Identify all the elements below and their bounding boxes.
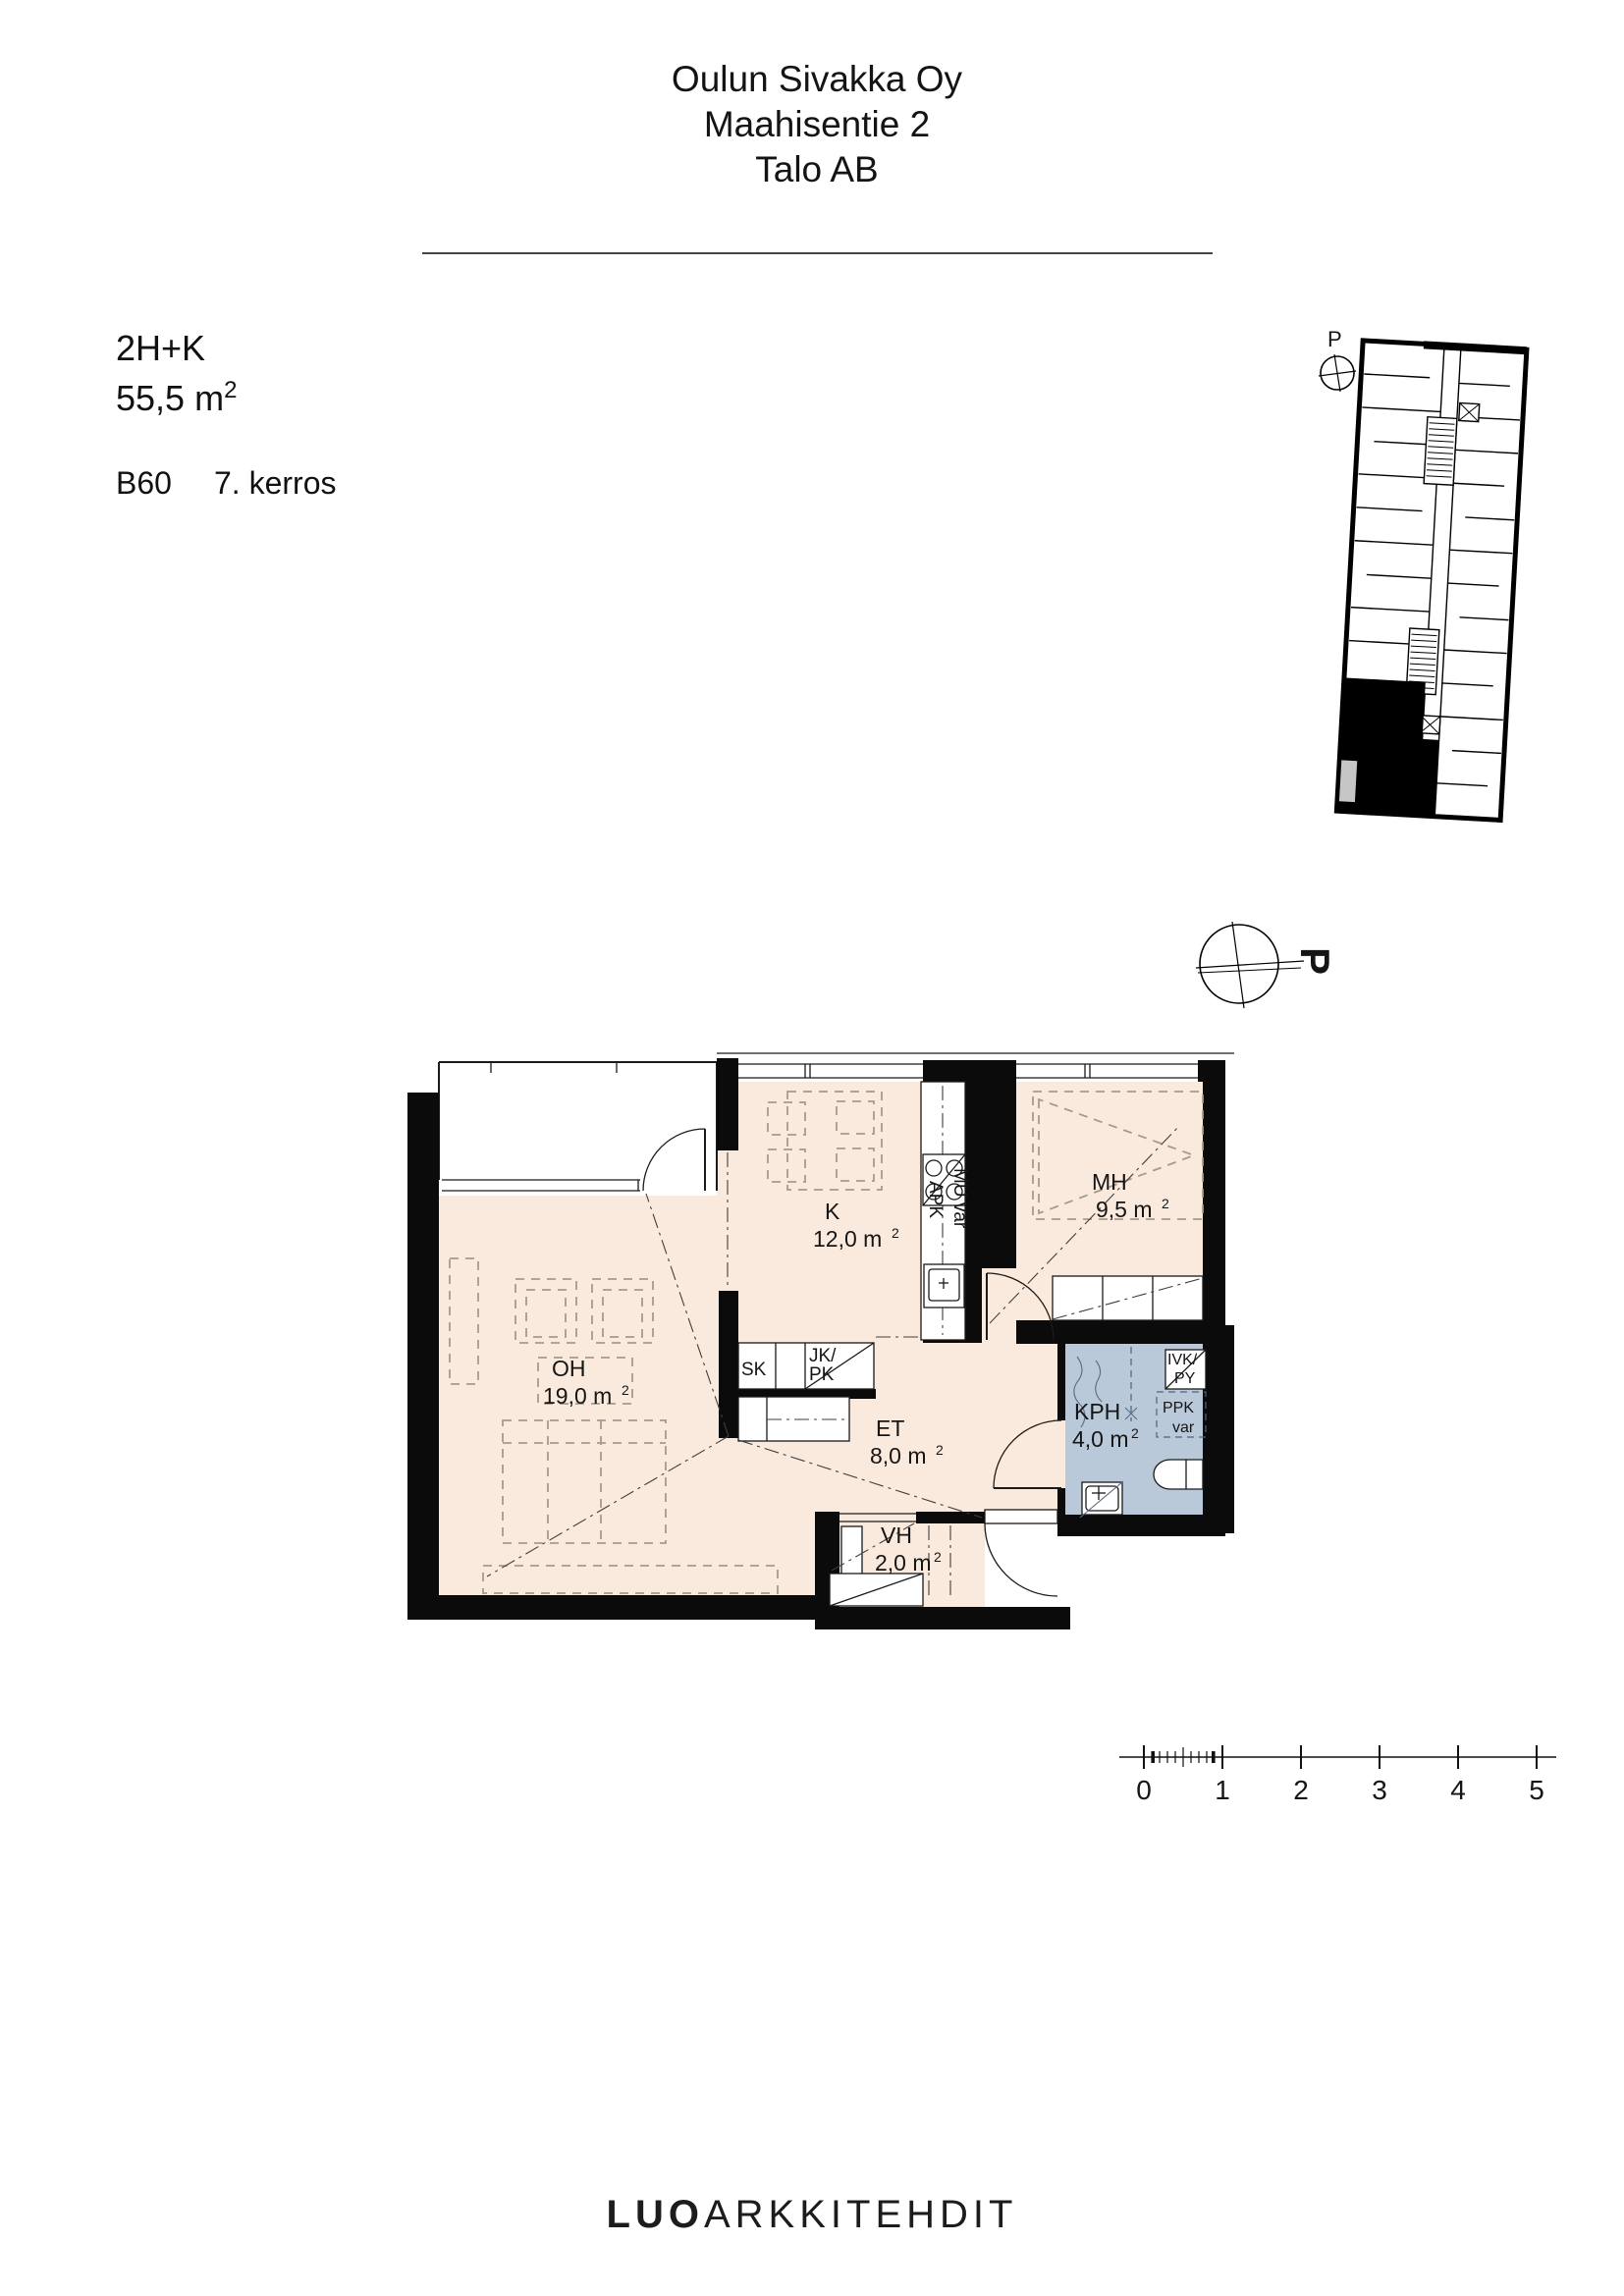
label-pk: PK xyxy=(809,1364,835,1385)
room-label-oh: OH xyxy=(552,1356,586,1381)
room-label-mh: MH xyxy=(1092,1169,1127,1195)
entrance-door xyxy=(985,1510,1057,1523)
document-title: Oulun Sivakka Oy Maahisentie 2 Talo AB xyxy=(424,57,1210,192)
wall xyxy=(916,1512,985,1523)
scale-bar: 0 1 2 3 4 5 xyxy=(1110,1733,1571,1811)
label-ppk: PPK xyxy=(1163,1400,1194,1416)
label-apk: APK xyxy=(925,1181,946,1218)
keyplan-north-label: P xyxy=(1327,327,1342,351)
compass-north-label: P xyxy=(1292,947,1338,975)
north-compass: P xyxy=(1164,898,1370,1036)
scale-label-4: 4 xyxy=(1450,1775,1466,1805)
wall xyxy=(407,1093,439,1620)
wall xyxy=(407,1595,839,1620)
logo-luo: LUO xyxy=(607,2193,704,2236)
room-label-k: K xyxy=(825,1199,840,1224)
apartment-area-sup: 2 xyxy=(224,377,237,403)
apartment-floor: 7. kerros xyxy=(214,465,336,502)
room-area-mh: 9,5 m xyxy=(1096,1197,1153,1222)
apartment-type: 2H+K xyxy=(116,328,205,369)
room-area-oh: 19,0 m xyxy=(543,1383,612,1409)
balcony xyxy=(439,1062,717,1191)
wall xyxy=(1057,1488,1065,1515)
title-address: Maahisentie 2 xyxy=(424,102,1210,147)
wall xyxy=(1016,1320,1225,1344)
et-floor xyxy=(738,1522,815,1607)
room-label-vh: VH xyxy=(881,1522,912,1548)
room-area-sup: 2 xyxy=(934,1549,942,1565)
scale-label-3: 3 xyxy=(1372,1775,1387,1805)
wall xyxy=(1057,1515,1225,1536)
apartment-area: 55,5 m2 xyxy=(116,377,237,419)
room-area-et: 8,0 m xyxy=(870,1443,927,1468)
keyplan-building xyxy=(1336,338,1527,821)
wall xyxy=(717,1058,738,1150)
keyplan-balcony-gray xyxy=(1339,760,1357,802)
balcony-door-swing xyxy=(643,1129,705,1191)
label-jk: JK/ xyxy=(809,1346,837,1366)
title-building: Talo AB xyxy=(424,147,1210,192)
room-area-kph: 4,0 m xyxy=(1072,1426,1129,1452)
wall xyxy=(1223,1325,1234,1533)
apartment-id: B60 xyxy=(116,465,172,502)
wall xyxy=(1057,1344,1065,1420)
scale-label-5: 5 xyxy=(1529,1775,1544,1805)
room-area-vh: 2,0 m xyxy=(875,1550,932,1575)
apartment-area-value: 55,5 m xyxy=(116,378,224,418)
toilet-icon xyxy=(1154,1460,1203,1489)
entry-corridor xyxy=(985,1523,1065,1610)
scale-label-0: 0 xyxy=(1136,1775,1152,1805)
wall xyxy=(982,1060,1016,1268)
wall xyxy=(1203,1060,1225,1533)
wall xyxy=(815,1607,1070,1629)
room-area-sup: 2 xyxy=(622,1382,629,1398)
logo-arkkitehdit: ARKKITEHDIT xyxy=(704,2193,1017,2236)
label-py: PY xyxy=(1174,1370,1196,1387)
keyplan-compass-icon xyxy=(1319,354,1356,392)
label-ppk-var: var xyxy=(1172,1419,1195,1436)
mh-closet xyxy=(1053,1276,1203,1320)
room-area-sup: 2 xyxy=(1131,1425,1139,1441)
room-label-et: ET xyxy=(876,1415,904,1441)
room-label-kph: KPH xyxy=(1074,1399,1120,1424)
room-area-sup: 2 xyxy=(892,1225,899,1241)
architect-logo: LUOARKKITEHDIT xyxy=(0,2193,1624,2237)
k-window xyxy=(738,1060,923,1082)
scale-label-1: 1 xyxy=(1215,1775,1230,1805)
title-company: Oulun Sivakka Oy xyxy=(424,57,1210,102)
label-mu-var: MU var xyxy=(949,1168,970,1229)
label-ivk: IVK/ xyxy=(1167,1352,1198,1368)
compass-icon xyxy=(1196,922,1304,1008)
label-sk: SK xyxy=(741,1360,767,1380)
title-divider xyxy=(422,252,1213,254)
room-area-sup: 2 xyxy=(936,1442,944,1458)
scale-label-2: 2 xyxy=(1293,1775,1309,1805)
mh-window xyxy=(1016,1060,1198,1082)
room-area-k: 12,0 m xyxy=(813,1226,882,1252)
room-area-sup: 2 xyxy=(1162,1196,1169,1211)
floor-plan: OH 19,0 m 2 K 12,0 m 2 MH 9,5 m 2 ET 8,0… xyxy=(393,1031,1257,1649)
keyplan: P xyxy=(1306,319,1620,844)
